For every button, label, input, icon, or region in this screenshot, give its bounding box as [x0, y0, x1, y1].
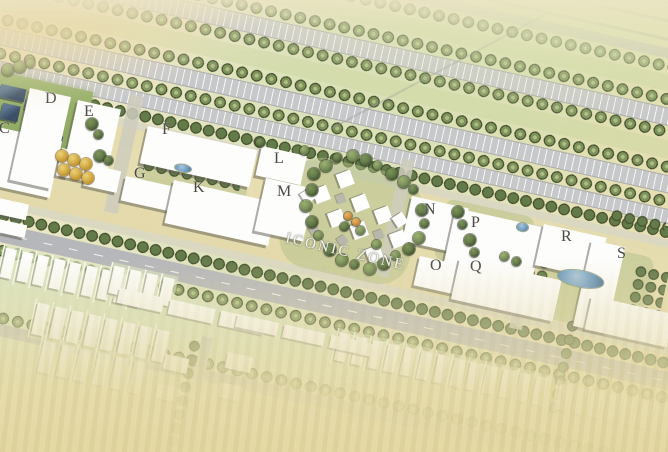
site-plan-canvas: ICONIC ZONE CDEFGKLMNOPQRS	[0, 0, 668, 452]
campus-building	[0, 84, 27, 102]
campus-building	[0, 103, 21, 123]
